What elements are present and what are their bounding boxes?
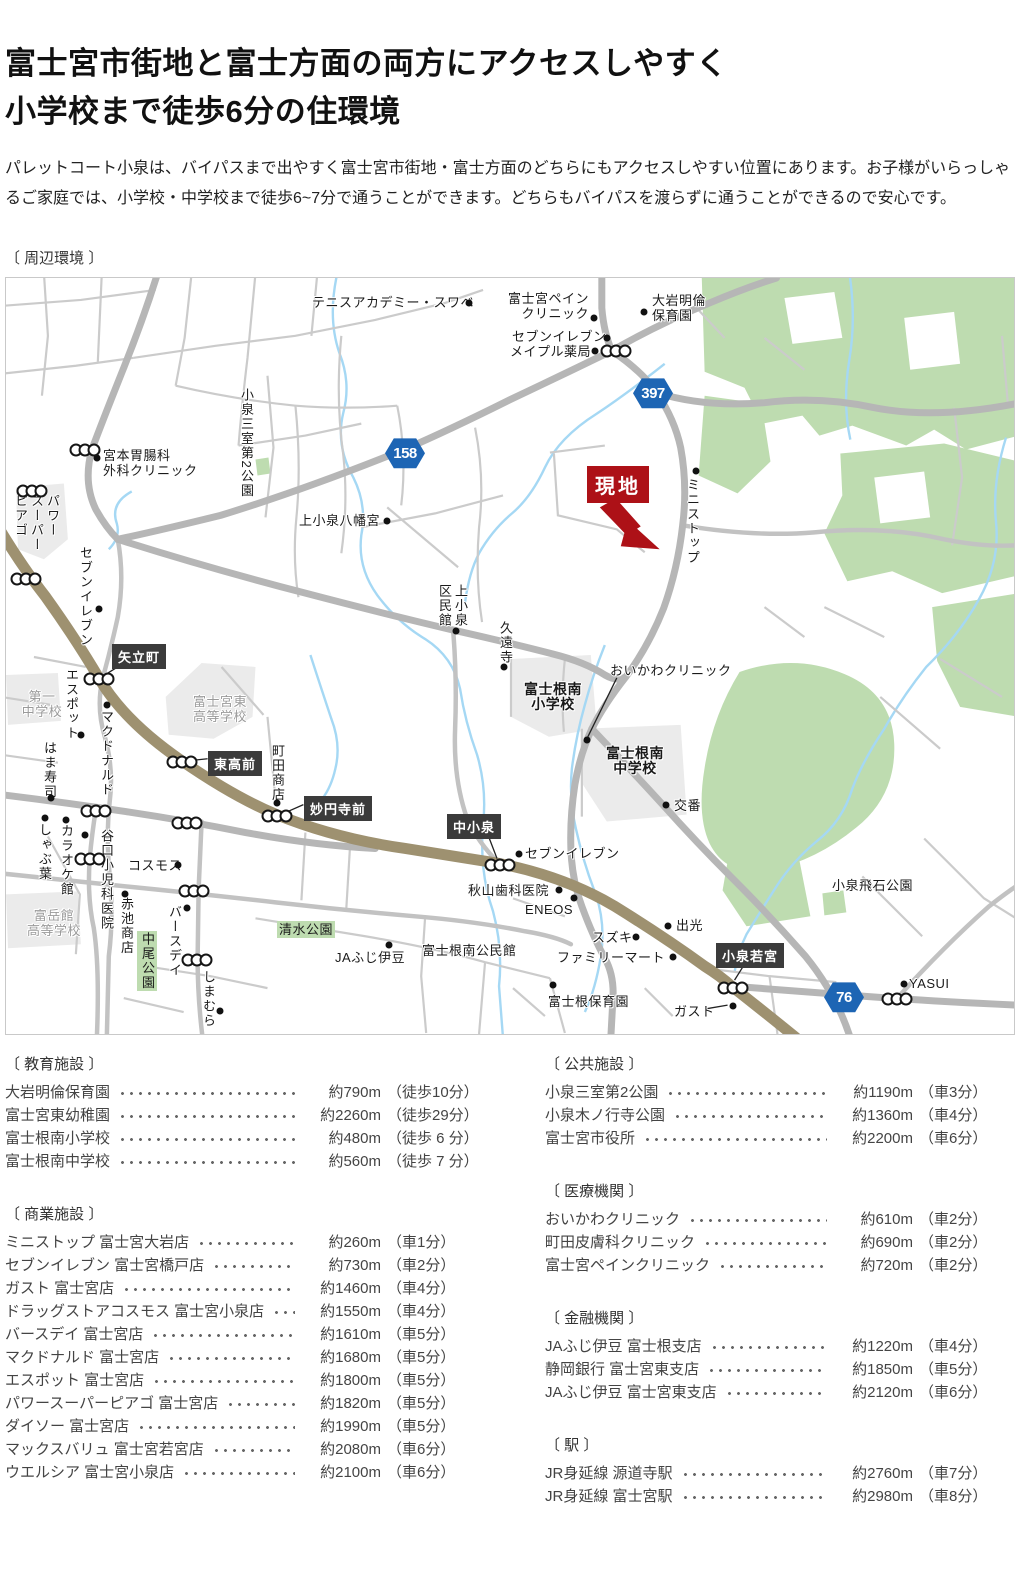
dotted-leader [272,1304,295,1319]
traffic-light-icon [70,444,101,457]
site-arrow [600,499,660,550]
map-label: 富士宮ペイン クリニック [504,291,589,321]
poi-dot [122,891,129,898]
facility-row: 大岩明倫保育園約790m（徒歩10分） [5,1081,483,1104]
dotted-leader [212,1258,295,1273]
facility-distance: 約1220m [835,1335,913,1358]
facility-group: 〔 駅 〕JR身延線 源道寺駅約2760m（車7分）JR身延線 富士宮駅約298… [545,1434,1015,1508]
facility-distance: 約2760m [835,1462,913,1485]
map-label: ファミリーマート [557,950,665,965]
poi-dot [665,923,672,930]
map-label: 小泉三室第2公園 [238,388,254,498]
map-label: セブンイレブン [77,546,93,648]
map-label: メイプル薬局 [510,344,591,359]
facility-name: エスポット 富士宮店 [5,1369,144,1392]
map-label: 上小泉八幡宮 [299,513,380,528]
facility-distance: 約1460m [303,1277,381,1300]
map-section-label: 〔 周辺環境 〕 [5,247,1015,268]
page-title: 富士宮市街地と富士方面の両方にアクセスしやすく 小学校まで徒歩6分の住環境 [5,40,1015,136]
poi-dot [633,934,640,941]
poi-dot [386,942,393,949]
facility-row: 富士宮東幼稚園約2260m（徒歩29分） [5,1104,483,1127]
facility-time: （車6分） [919,1381,1015,1404]
intersection-label: 東高前 [208,751,262,776]
dotted-leader [197,1235,295,1250]
poi-dot [104,702,111,709]
facility-distance: 約1550m [303,1300,381,1323]
facility-name: 富士宮市役所 [545,1127,635,1150]
facility-time: （車5分） [387,1392,483,1415]
facility-name: 富士根南中学校 [5,1150,110,1173]
facility-name: 小泉木ノ行寺公園 [545,1104,665,1127]
dotted-leader [167,1350,295,1365]
poi-dot [556,887,563,894]
poi-dot [591,315,598,322]
facility-name: マクドナルド 富士宮店 [5,1346,159,1369]
facility-name: おいかわクリニック [545,1208,680,1231]
site-marker: 現地 [587,466,649,503]
facility-name: 静岡銀行 富士宮東支店 [545,1358,699,1381]
map-label: 中尾公園 [137,931,157,991]
intro-paragraph: パレットコート小泉は、バイパスまで出やすく富士宮市街地・富士方面のどちらにもアク… [5,154,1015,213]
facility-name: JR身延線 富士宮駅 [545,1485,673,1508]
map-label: 清水公園 [277,921,335,938]
traffic-light-icon [167,756,198,769]
traffic-light-icon [179,885,210,898]
map-label: はま寿司 [41,741,57,799]
facility-distance: 約720m [835,1254,913,1277]
facility-distance: 約730m [303,1254,381,1277]
facility-time: （車5分） [387,1346,483,1369]
area-map: テニスアカデミー・スワベ富士宮ペイン クリニック大岩明倫 保育園セブンイレブンメ… [5,277,1015,1035]
facility-row: エスポット 富士宮店約1800m（車5分） [5,1369,483,1392]
map-label: パワー スーパー ピアゴ [12,494,60,552]
facility-group-title: 〔 教育施設 〕 [5,1053,483,1074]
facility-time: （車7分） [919,1462,1015,1485]
traffic-light-icon [17,485,48,498]
map-label: 交番 [674,798,701,813]
poi-dot [42,815,49,822]
map-label: ENEOS [525,902,573,917]
poi-dot [466,300,473,307]
facility-name: ドラッグストアコスモス 富士宮小泉店 [5,1300,264,1323]
facility-time: （車6分） [387,1438,483,1461]
facility-row: 富士宮ペインクリニック約720m（車2分） [545,1254,1015,1277]
dotted-leader [688,1212,827,1227]
traffic-light-icon [84,673,115,686]
map-label: しまむら [200,970,216,1028]
facility-time: （車8分） [919,1485,1015,1508]
facility-name: ダイソー 富士宮店 [5,1415,129,1438]
facility-group: 〔 商業施設 〕ミニストップ 富士宮大岩店約260m（車1分）セブンイレブン 富… [5,1203,483,1484]
poi-dot [184,905,191,912]
facility-distance: 約790m [303,1081,381,1104]
dotted-leader [703,1235,827,1250]
facility-time: （徒歩29分） [387,1104,483,1127]
traffic-light-icon [81,805,112,818]
traffic-light-icon [172,817,203,830]
facility-row: ミニストップ 富士宮大岩店約260m（車1分） [5,1231,483,1254]
poi-dot [550,982,557,989]
map-label: バースデイ [166,905,182,978]
facility-row: おいかわクリニック約610m（車2分） [545,1208,1015,1231]
map-label: カラオケ館 [58,824,74,897]
facility-row: JR身延線 源道寺駅約2760m（車7分） [545,1462,1015,1485]
facility-row: 富士根南中学校約560m（徒歩 7 分） [5,1150,483,1173]
facility-name: JAふじ伊豆 富士根支店 [545,1335,702,1358]
facility-distance: 約610m [835,1208,913,1231]
facility-name: 富士根南小学校 [5,1127,110,1150]
poi-dot [96,606,103,613]
map-label: 久遠寺 [497,621,513,665]
facility-time: （徒歩10分） [387,1081,483,1104]
map-label: しゃぶ葉 [36,823,52,881]
dotted-leader [643,1131,827,1146]
facility-time: （車4分） [919,1104,1015,1127]
dotted-leader [673,1108,827,1123]
facility-distance: 約2200m [835,1127,913,1150]
map-label: 秋山歯科医院 [468,883,549,898]
map-label: セブンイレブン [525,846,620,861]
facility-column-left: 〔 教育施設 〕大岩明倫保育園約790m（徒歩10分）富士宮東幼稚園約2260m… [5,1053,483,1538]
dotted-leader [710,1339,827,1354]
map-label: 赤池商店 [118,897,134,955]
map-label: 富士根南公民館 [422,943,517,958]
poi-dot [175,862,182,869]
facility-distance: 約260m [303,1231,381,1254]
facility-distance: 約2260m [303,1104,381,1127]
facility-distance: 約1680m [303,1346,381,1369]
dotted-leader [681,1489,827,1504]
facility-row: JAふじ伊豆 富士宮東支店約2120m（車6分） [545,1381,1015,1404]
map-label: 上小泉 区民館 [436,584,468,628]
facility-time: （車2分） [919,1208,1015,1231]
intersection-label: 中小泉 [447,814,501,839]
facility-name: 大岩明倫保育園 [5,1081,110,1104]
facility-name: 小泉三室第2公園 [545,1081,658,1104]
dotted-leader [118,1108,295,1123]
facility-distance: 約2080m [303,1438,381,1461]
map-label: ミニストップ [684,478,700,565]
poi-dot [453,628,460,635]
map-label: 富士根南 小学校 [520,682,586,712]
traffic-light-icon [882,993,913,1006]
facility-row: ダイソー 富士宮店約1990m（車5分） [5,1415,483,1438]
facility-time: （車5分） [387,1323,483,1346]
facility-distance: 約2120m [835,1381,913,1404]
facility-row: セブンイレブン 富士宮橋戸店約730m（車2分） [5,1254,483,1277]
facility-time: （車1分） [387,1231,483,1254]
facility-row: JR身延線 富士宮駅約2980m（車8分） [545,1485,1015,1508]
facility-time: （徒歩 6 分） [387,1127,483,1150]
dotted-leader [137,1419,295,1434]
facility-name: ウエルシア 富士宮小泉店 [5,1461,174,1484]
facility-row: ドラッグストアコスモス 富士宮小泉店約1550m（車4分） [5,1300,483,1323]
facility-column-right: 〔 公共施設 〕小泉三室第2公園約1190m（車3分）小泉木ノ行寺公園約1360… [545,1053,1015,1538]
dotted-leader [118,1131,295,1146]
dotted-leader [707,1362,827,1377]
facility-name: マックスバリュ 富士宮若宮店 [5,1438,204,1461]
map-label: セブンイレブン [512,329,607,344]
map-label: JAふじ伊豆 [335,950,405,965]
map-label: 富士根保育園 [548,994,629,1009]
map-label: 谷口小児科医院 [98,829,114,931]
map-label: マクドナルド [98,710,114,797]
page: 富士宮市街地と富士方面の両方にアクセスしやすく 小学校まで徒歩6分の住環境 パレ… [5,0,1015,1568]
map-label: 大岩明倫 保育園 [652,293,706,323]
facility-row: パワースーパーピアゴ 富士宮店約1820m（車5分） [5,1392,483,1415]
map-label: YASUI [909,976,950,991]
facility-row: 小泉三室第2公園約1190m（車3分） [545,1081,1015,1104]
facility-group: 〔 医療機関 〕おいかわクリニック約610m（車2分）町田皮膚科クリニック約69… [545,1180,1015,1277]
traffic-light-icon [601,345,632,358]
poi-dot [592,348,599,355]
facility-distance: 約1360m [835,1104,913,1127]
facility-time: （車4分） [387,1300,483,1323]
map-label: おいかわクリニック [610,663,732,678]
dotted-leader [182,1465,295,1480]
map-label: 富士根南 中学校 [600,746,670,776]
dotted-leader [151,1327,295,1342]
facility-group: 〔 公共施設 〕小泉三室第2公園約1190m（車3分）小泉木ノ行寺公園約1360… [545,1053,1015,1150]
map-label: ガスト [674,1004,715,1019]
poi-dot [217,1008,224,1015]
facility-time: （車4分） [387,1277,483,1300]
facility-row: マクドナルド 富士宮店約1680m（車5分） [5,1346,483,1369]
traffic-light-icon [485,859,516,872]
facility-distance: 約690m [835,1231,913,1254]
poi-dot [571,895,578,902]
dotted-leader [226,1396,295,1411]
facility-name: JAふじ伊豆 富士宮東支店 [545,1381,717,1404]
facility-time: （車5分） [387,1415,483,1438]
poi-dot [584,737,591,744]
facility-name: ミニストップ 富士宮大岩店 [5,1231,189,1254]
facility-name: 富士宮東幼稚園 [5,1104,110,1127]
poi-dot [670,954,677,961]
dotted-leader [212,1442,295,1457]
poi-dot [82,832,89,839]
intersection-label: 小泉若宮 [716,943,784,968]
facility-time: （車5分） [919,1358,1015,1381]
facility-lists: 〔 教育施設 〕大岩明倫保育園約790m（徒歩10分）富士宮東幼稚園約2260m… [5,1053,1015,1568]
poi-dot [604,335,611,342]
facility-time: （徒歩 7 分） [387,1150,483,1173]
dotted-leader [725,1385,827,1400]
facility-distance: 約2980m [835,1485,913,1508]
facility-group: 〔 教育施設 〕大岩明倫保育園約790m（徒歩10分）富士宮東幼稚園約2260m… [5,1053,483,1173]
traffic-light-icon [182,954,213,967]
facility-group: 〔 金融機関 〕JAふじ伊豆 富士根支店約1220m（車4分）静岡銀行 富士宮東… [545,1307,1015,1404]
dotted-leader [118,1085,295,1100]
map-label: 第一 中学校 [14,689,70,719]
poi-dot [48,795,55,802]
map-label: 出光 [676,918,703,933]
poi-dot [641,309,648,316]
dotted-leader [118,1154,295,1169]
poi-dot [901,981,908,988]
facility-distance: 約1800m [303,1369,381,1392]
facility-time: （車6分） [919,1127,1015,1150]
poi-dot [730,1003,737,1010]
facility-row: 町田皮膚科クリニック約690m（車2分） [545,1231,1015,1254]
facility-group-title: 〔 金融機関 〕 [545,1307,1015,1328]
traffic-light-icon [75,853,106,866]
facility-name: ガスト 富士宮店 [5,1277,114,1300]
facility-distance: 約480m [303,1127,381,1150]
map-label: 小泉飛石公園 [832,878,913,893]
facility-group-title: 〔 公共施設 〕 [545,1053,1015,1074]
facility-group-title: 〔 商業施設 〕 [5,1203,483,1224]
traffic-light-icon [718,982,749,995]
traffic-light-icon [11,573,42,586]
park-areas [256,278,1014,926]
facility-name: セブンイレブン 富士宮橋戸店 [5,1254,204,1277]
facility-time: （車2分） [919,1254,1015,1277]
page-title-line2: 小学校まで徒歩6分の住環境 [5,88,1015,136]
facility-distance: 約1190m [835,1081,913,1104]
facility-time: （車3分） [919,1081,1015,1104]
facility-group-title: 〔 医療機関 〕 [545,1180,1015,1201]
facility-time: （車5分） [387,1369,483,1392]
facility-name: パワースーパーピアゴ 富士宮店 [5,1392,218,1415]
facility-time: （車2分） [919,1231,1015,1254]
facility-distance: 約560m [303,1150,381,1173]
poi-dot [78,732,85,739]
poi-dot [63,817,70,824]
traffic-light-icon [262,810,293,823]
facility-time: （車4分） [919,1335,1015,1358]
facility-distance: 約1990m [303,1415,381,1438]
facility-distance: 約2100m [303,1461,381,1484]
facility-row: JAふじ伊豆 富士根支店約1220m（車4分） [545,1335,1015,1358]
dotted-leader [152,1373,295,1388]
facility-row: バースデイ 富士宮店約1610m（車5分） [5,1323,483,1346]
facility-distance: 約1820m [303,1392,381,1415]
facility-row: 富士根南小学校約480m（徒歩 6 分） [5,1127,483,1150]
dotted-leader [122,1281,295,1296]
facility-row: ウエルシア 富士宮小泉店約2100m（車6分） [5,1461,483,1484]
map-label: テニスアカデミー・スワベ [312,295,474,310]
poi-dot [274,800,281,807]
dotted-leader [718,1258,827,1273]
facility-group-title: 〔 駅 〕 [545,1434,1015,1455]
facility-name: バースデイ 富士宮店 [5,1323,143,1346]
poi-dot [516,851,523,858]
facility-name: 富士宮ペインクリニック [545,1254,710,1277]
facility-name: JR身延線 源道寺駅 [545,1462,673,1485]
facility-row: 富士宮市役所約2200m（車6分） [545,1127,1015,1150]
facility-row: 小泉木ノ行寺公園約1360m（車4分） [545,1104,1015,1127]
map-label: 富士宮東 高等学校 [188,694,252,724]
facility-row: マックスバリュ 富士宮若宮店約2080m（車6分） [5,1438,483,1461]
intersection-label: 矢立町 [112,644,166,669]
poi-dot [501,664,508,671]
map-label: 町田商店 [269,744,285,802]
facility-row: ガスト 富士宮店約1460m（車4分） [5,1277,483,1300]
facility-distance: 約1850m [835,1358,913,1381]
dotted-leader [666,1085,827,1100]
poi-dot [663,802,670,809]
map-label: エスポット [63,668,79,741]
facility-row: 静岡銀行 富士宮東支店約1850m（車5分） [545,1358,1015,1381]
map-label: スズキ [592,930,633,945]
facility-name: 町田皮膚科クリニック [545,1231,695,1254]
page-title-line1: 富士宮市街地と富士方面の両方にアクセスしやすく [5,40,1015,88]
poi-dot [693,468,700,475]
intersection-label: 妙円寺前 [304,796,372,821]
dotted-leader [681,1466,827,1481]
facility-distance: 約1610m [303,1323,381,1346]
facility-time: （車2分） [387,1254,483,1277]
poi-dot [384,518,391,525]
facility-time: （車6分） [387,1461,483,1484]
map-label: 富岳館 高等学校 [24,908,84,938]
map-label: 宮本胃腸科 外科クリニック [103,448,198,478]
